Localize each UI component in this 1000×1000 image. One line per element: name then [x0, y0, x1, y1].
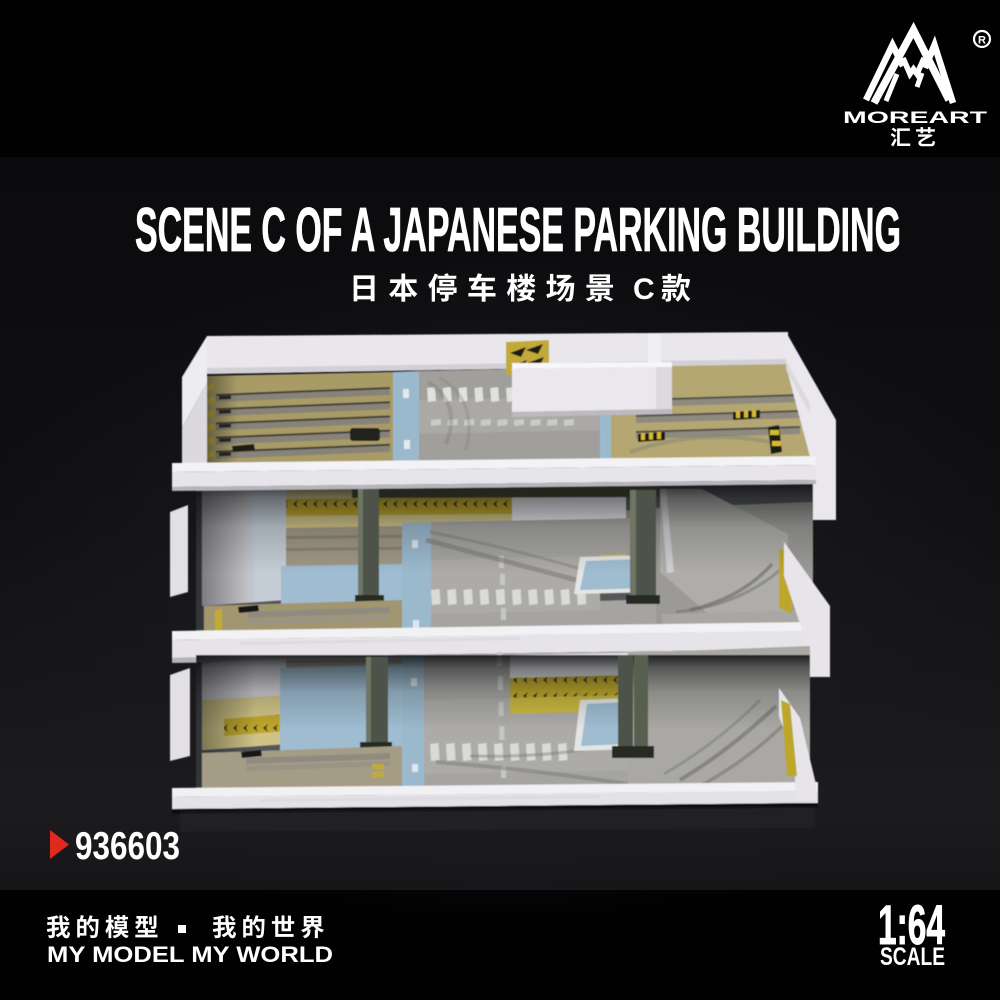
svg-text:SCALE: SCALE: [880, 943, 945, 971]
svg-text:MOREART: MOREART: [843, 108, 988, 127]
svg-text:R: R: [978, 35, 986, 47]
svg-text:936603: 936603: [75, 825, 180, 868]
svg-text:SCENE C OF A JAPANESE PARKING: SCENE C OF A JAPANESE PARKING BUILDING: [135, 196, 901, 265]
svg-text:MY MODEL MY WORLD: MY MODEL MY WORLD: [47, 942, 333, 967]
svg-text:C: C: [633, 273, 655, 306]
